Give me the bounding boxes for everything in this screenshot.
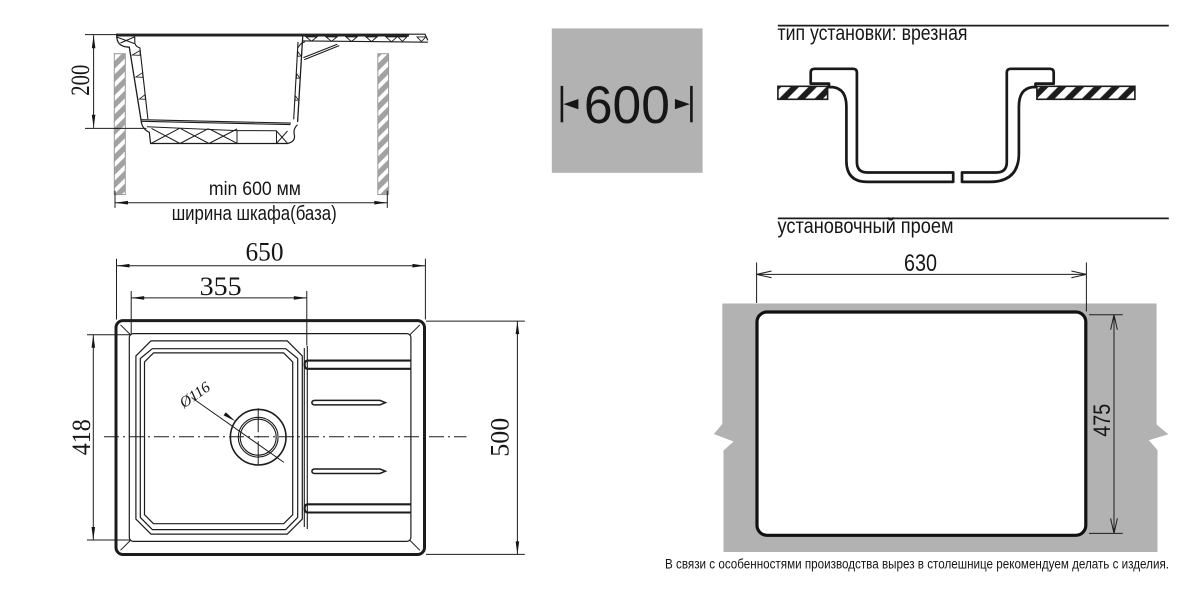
svg-text:630: 630 xyxy=(904,250,937,277)
svg-text:установочный проем: установочный проем xyxy=(778,215,954,238)
svg-text:418: 418 xyxy=(67,419,96,455)
svg-text:650: 650 xyxy=(246,237,284,266)
svg-text:355: 355 xyxy=(200,272,242,301)
svg-text:тип установки: врезная: тип установки: врезная xyxy=(778,22,968,45)
svg-text:600: 600 xyxy=(584,76,670,135)
svg-text:500: 500 xyxy=(486,418,515,457)
svg-text:В связи с особенностями произв: В связи с особенностями производства выр… xyxy=(665,556,1169,572)
svg-text:min 600 мм: min 600 мм xyxy=(209,179,301,200)
svg-text:Ø116: Ø116 xyxy=(176,379,214,413)
svg-text:200: 200 xyxy=(66,65,95,96)
svg-text:ширина шкафа(база): ширина шкафа(база) xyxy=(172,203,337,225)
svg-text:475: 475 xyxy=(1089,404,1116,437)
